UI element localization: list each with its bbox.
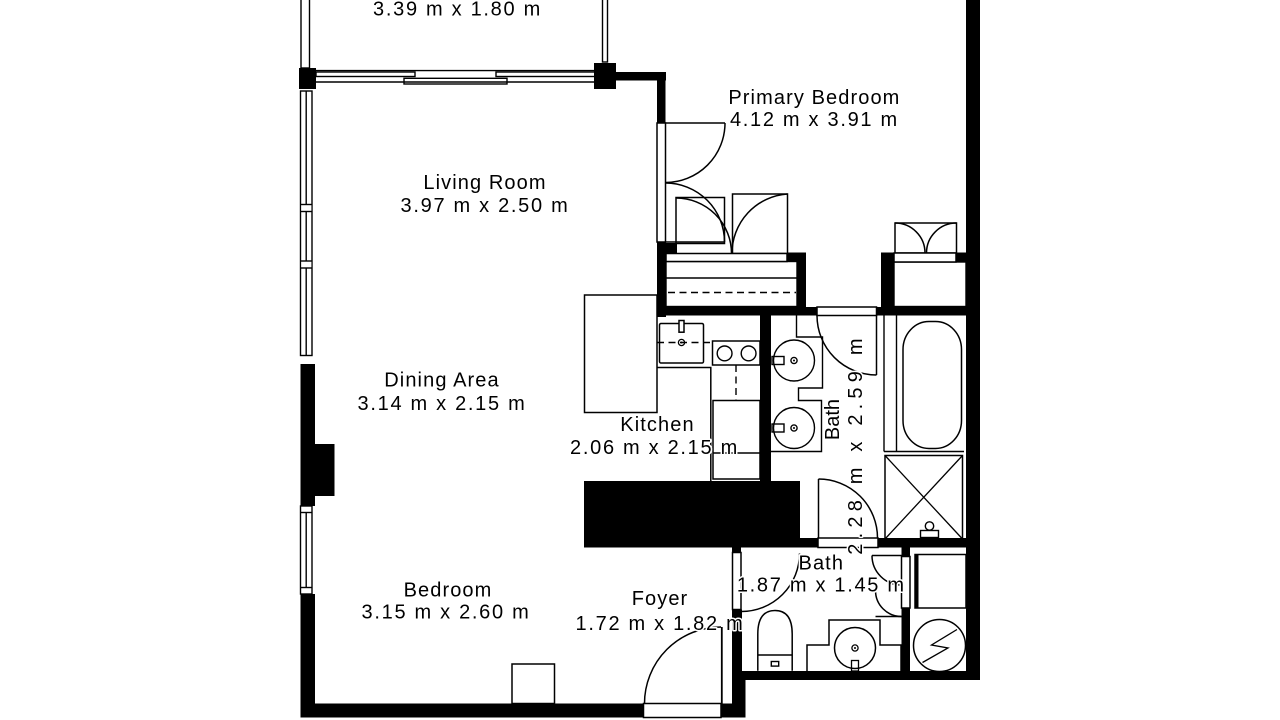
svg-text:1.87 m x 1.45 m: 1.87 m x 1.45 m [737, 575, 906, 597]
svg-text:Bath: Bath [822, 399, 844, 440]
svg-text:3.97 m x 2.50 m: 3.97 m x 2.50 m [401, 195, 570, 217]
svg-text:Kitchen: Kitchen [620, 414, 694, 436]
svg-text:Foyer: Foyer [632, 588, 689, 610]
svg-text:2.28 m x 2.59 m: 2.28 m x 2.59 m [845, 333, 867, 554]
svg-text:3.14 m x 2.15 m: 3.14 m x 2.15 m [358, 393, 527, 415]
svg-text:1.72 m x 1.82 m: 1.72 m x 1.82 m [576, 613, 745, 635]
svg-text:2.06 m x 2.15 m: 2.06 m x 2.15 m [570, 437, 739, 459]
svg-text:Dining Area: Dining Area [384, 369, 500, 391]
svg-text:Bath: Bath [799, 553, 845, 575]
svg-text:4.12 m x 3.91 m: 4.12 m x 3.91 m [730, 109, 899, 131]
svg-text:Primary Bedroom: Primary Bedroom [728, 87, 900, 109]
svg-text:3.15 m x 2.60 m: 3.15 m x 2.60 m [362, 602, 531, 624]
svg-text:Living Room: Living Room [423, 172, 546, 194]
svg-text:Bedroom: Bedroom [404, 579, 493, 601]
svg-text:3.39 m x 1.80 m: 3.39 m x 1.80 m [373, 0, 542, 20]
